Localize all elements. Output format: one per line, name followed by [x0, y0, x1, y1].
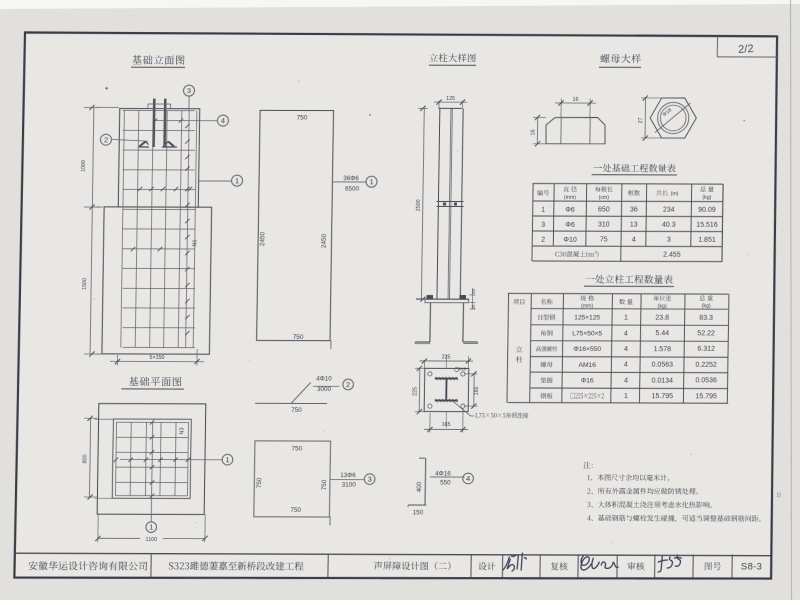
svg-text:3100: 3100 — [342, 482, 357, 489]
svg-text:1.851: 1.851 — [698, 237, 716, 244]
svg-text:36Φ6: 36Φ6 — [343, 175, 359, 182]
svg-text:125: 125 — [446, 96, 455, 102]
svg-text:225: 225 — [413, 387, 419, 396]
svg-text:N1: N1 — [192, 240, 198, 247]
svg-text:(m): (m) — [671, 191, 679, 197]
svg-text:(kg): (kg) — [658, 303, 667, 309]
svg-text:4: 4 — [221, 116, 225, 125]
svg-text:(kg): (kg) — [702, 195, 711, 201]
svg-text:4: 4 — [624, 346, 628, 353]
svg-text:3: 3 — [368, 475, 372, 484]
svg-text:Φ16: Φ16 — [581, 377, 594, 384]
svg-text:AM16: AM16 — [578, 362, 596, 369]
svg-text:Φ18: Φ18 — [458, 367, 467, 372]
svg-text:800: 800 — [82, 455, 88, 464]
svg-text:15.795: 15.795 — [695, 393, 717, 400]
svg-text:1100: 1100 — [146, 537, 158, 543]
svg-text:15.795: 15.795 — [652, 393, 674, 400]
svg-text:15.516: 15.516 — [696, 222, 718, 229]
svg-text:(mm): (mm) — [564, 195, 576, 201]
svg-text:4Φ10: 4Φ10 — [316, 375, 332, 382]
svg-text:0.0536: 0.0536 — [695, 377, 717, 384]
svg-text:N3: N3 — [179, 427, 185, 434]
svg-text:5.44: 5.44 — [655, 330, 669, 337]
svg-text:27: 27 — [638, 118, 644, 124]
svg-text:3: 3 — [667, 237, 671, 244]
svg-text:1.578: 1.578 — [653, 346, 671, 353]
svg-text:1000: 1000 — [81, 160, 87, 172]
svg-text:3: 3 — [541, 222, 545, 229]
svg-text:6.312: 6.312 — [697, 346, 715, 353]
svg-text:2: 2 — [104, 135, 108, 144]
svg-text:36: 36 — [630, 207, 638, 214]
svg-text:165: 165 — [474, 387, 480, 396]
svg-text:Φ16×550: Φ16×550 — [573, 346, 601, 353]
svg-text:52.22: 52.22 — [697, 330, 715, 337]
svg-text:2450: 2450 — [259, 231, 266, 246]
svg-text:234: 234 — [663, 207, 675, 214]
svg-text:45: 45 — [471, 288, 476, 293]
svg-text:1: 1 — [624, 315, 628, 322]
svg-text:750: 750 — [293, 334, 304, 341]
svg-text:83.3: 83.3 — [699, 315, 713, 322]
svg-text:125×125: 125×125 — [574, 315, 600, 322]
svg-text:Φ10: Φ10 — [563, 237, 577, 244]
svg-text:550: 550 — [440, 479, 451, 486]
svg-text:1: 1 — [235, 176, 239, 185]
svg-text:16: 16 — [573, 97, 579, 103]
svg-text:1500: 1500 — [82, 278, 88, 290]
svg-text:4: 4 — [632, 237, 636, 244]
svg-text:2.455: 2.455 — [663, 252, 681, 259]
svg-text:225: 225 — [442, 354, 451, 360]
svg-text:1: 1 — [541, 207, 545, 214]
svg-text:2500: 2500 — [416, 199, 422, 211]
svg-text:Φ6: Φ6 — [565, 222, 575, 229]
svg-text:750: 750 — [256, 477, 263, 488]
svg-text:3: 3 — [187, 86, 191, 95]
svg-text:750: 750 — [321, 479, 328, 490]
svg-text:16: 16 — [530, 129, 536, 135]
svg-text:2450: 2450 — [321, 233, 328, 248]
svg-text:750: 750 — [292, 445, 303, 452]
svg-text:750: 750 — [297, 114, 308, 121]
svg-text:25: 25 — [471, 304, 476, 309]
svg-text:310: 310 — [598, 222, 610, 229]
svg-text:0.0563: 0.0563 — [651, 362, 673, 369]
svg-text:13Φ6: 13Φ6 — [340, 472, 356, 479]
svg-text:3000: 3000 — [317, 386, 332, 393]
svg-text:750: 750 — [291, 407, 302, 414]
svg-text:150: 150 — [413, 509, 424, 516]
svg-text:2/2: 2/2 — [738, 43, 754, 56]
svg-text:4: 4 — [624, 330, 628, 337]
svg-text:13: 13 — [630, 222, 638, 229]
svg-text:4Φ16: 4Φ16 — [435, 470, 451, 477]
svg-text:90.09: 90.09 — [698, 207, 716, 214]
svg-text:650: 650 — [598, 207, 610, 214]
svg-text:23.8: 23.8 — [655, 315, 669, 322]
svg-text:1: 1 — [624, 393, 628, 400]
svg-text:(cm): (cm) — [599, 195, 610, 201]
svg-text:750: 750 — [290, 507, 301, 514]
svg-text:0.2252: 0.2252 — [695, 362, 717, 369]
svg-text:75: 75 — [600, 237, 608, 244]
svg-text:4: 4 — [624, 377, 628, 384]
svg-text:1): 1) — [776, 493, 781, 499]
svg-text:4: 4 — [466, 474, 470, 483]
svg-text:6500: 6500 — [345, 186, 360, 193]
svg-text:2: 2 — [541, 237, 545, 244]
svg-text:1: 1 — [225, 455, 229, 464]
svg-text:165: 165 — [442, 422, 451, 428]
svg-text:S8-3: S8-3 — [741, 561, 762, 572]
svg-text:5×150: 5×150 — [150, 355, 165, 361]
svg-text:1: 1 — [149, 523, 153, 532]
svg-text:Φ6: Φ6 — [565, 207, 575, 214]
svg-text:(mm): (mm) — [581, 304, 593, 310]
svg-text:4: 4 — [624, 362, 628, 369]
svg-text:2: 2 — [346, 380, 350, 389]
svg-text:1: 1 — [369, 177, 373, 186]
svg-text:400: 400 — [416, 481, 423, 492]
svg-text:L75×50×5: L75×50×5 — [572, 330, 602, 337]
svg-text:0.0134: 0.0134 — [652, 377, 674, 384]
svg-text:40.3: 40.3 — [662, 222, 676, 229]
svg-text:(kg): (kg) — [702, 304, 711, 310]
